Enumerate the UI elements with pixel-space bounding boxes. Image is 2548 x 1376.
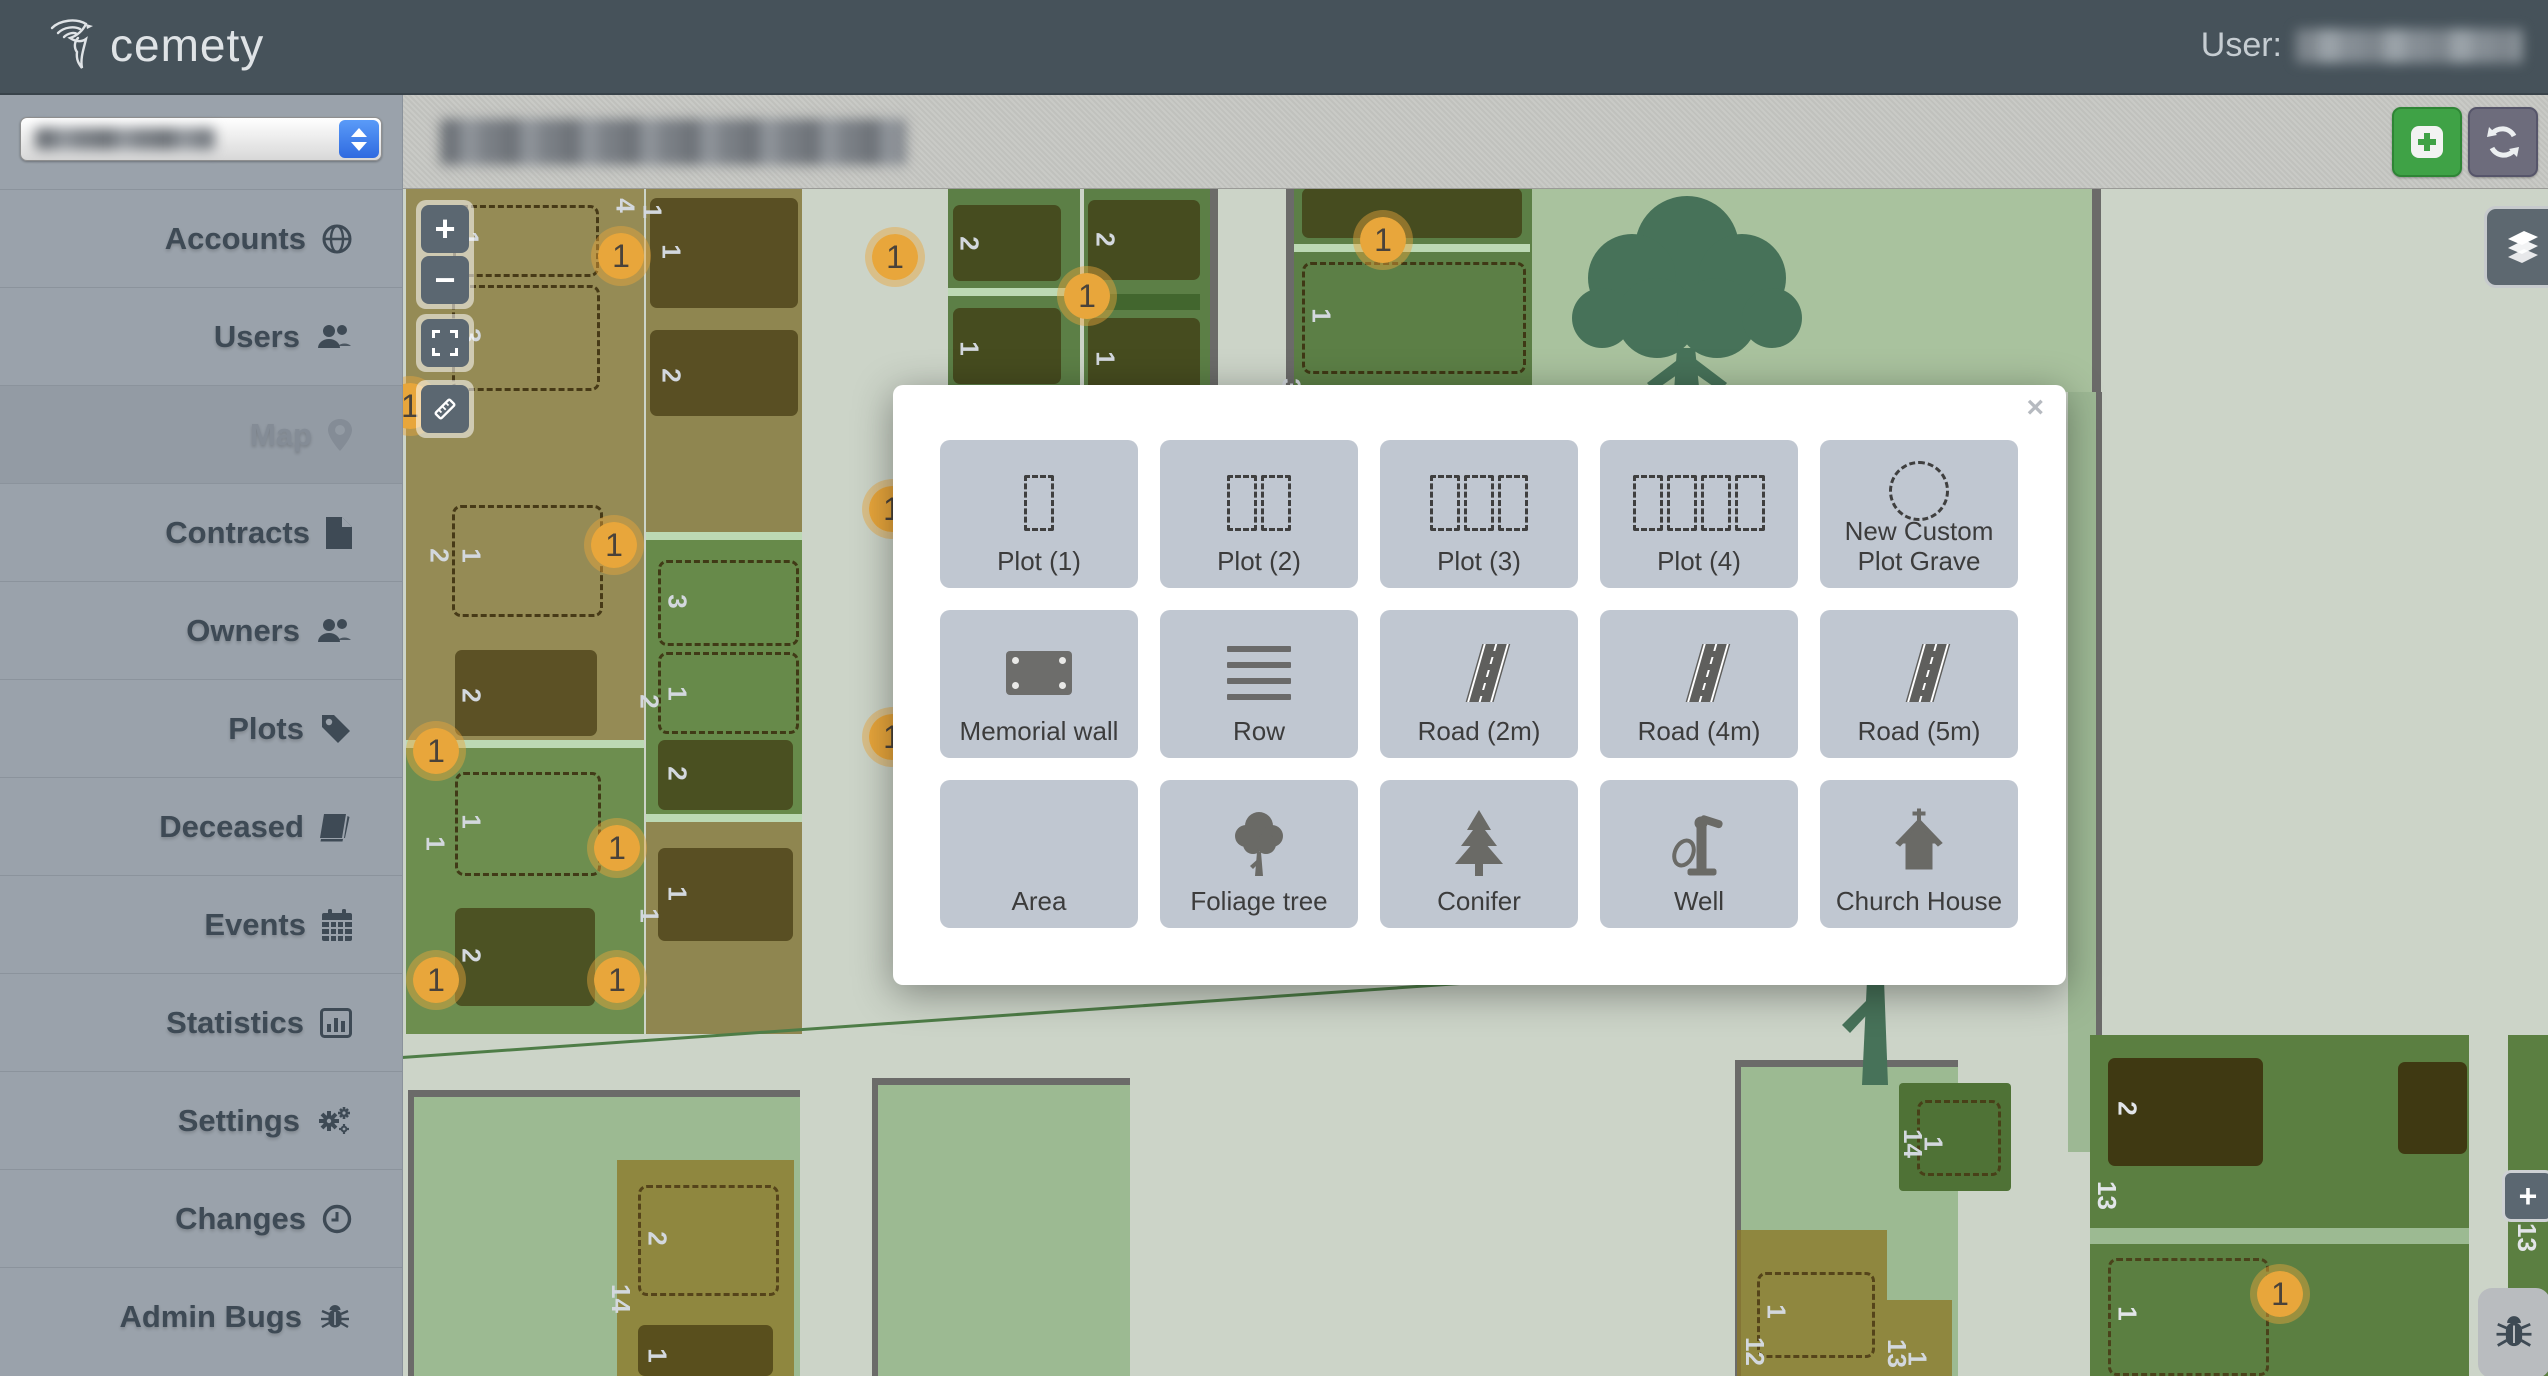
sidebar-item-label: Settings xyxy=(178,1103,300,1139)
plot-number: 1 xyxy=(420,836,451,850)
user-label: User: xyxy=(2201,26,2282,65)
custom-plot-icon xyxy=(1820,452,2018,530)
map-path xyxy=(2090,1228,2469,1244)
foliage-tree-map xyxy=(1542,188,1832,408)
add-button[interactable] xyxy=(2392,107,2462,177)
tool-memorial-wall[interactable]: Memorial wall xyxy=(940,610,1138,758)
calendar-icon xyxy=(322,909,352,941)
road-5m-icon xyxy=(1820,634,2018,712)
plot-number: 13 xyxy=(2091,1181,2122,1210)
plot-number: 2 xyxy=(634,694,665,708)
sidebar-item-events[interactable]: Events xyxy=(0,875,402,973)
plot-number: 1 xyxy=(1902,1351,1933,1365)
refresh-icon xyxy=(2483,122,2523,162)
tool-plot-2[interactable]: Plot (2) xyxy=(1160,440,1358,588)
layers-icon xyxy=(2502,229,2542,265)
plot-number: 1 xyxy=(456,814,487,828)
road-2m-icon xyxy=(1380,634,1578,712)
dove-logo-icon xyxy=(46,14,110,76)
plot-solid[interactable] xyxy=(2398,1062,2467,1154)
sidebar-item-statistics[interactable]: Statistics xyxy=(0,973,402,1071)
plot-number: 2 xyxy=(456,688,487,702)
measure-button[interactable] xyxy=(421,385,469,433)
add-icon xyxy=(2407,122,2447,162)
plot-number: 13 xyxy=(2511,1223,2542,1252)
map-marker[interactable]: 1 xyxy=(1353,210,1413,270)
users-icon xyxy=(316,616,352,646)
sidebar-item-admin-bugs[interactable]: Admin Bugs xyxy=(0,1267,402,1365)
user-name-redacted xyxy=(2296,29,2522,63)
map-header-bar xyxy=(402,93,2548,189)
map-marker[interactable]: 1 xyxy=(591,226,651,286)
plot-number: 2 xyxy=(642,1231,673,1245)
user-info[interactable]: User: xyxy=(2201,26,2522,65)
zoom-control-group: + − xyxy=(416,200,474,309)
sidebar-item-label: Map xyxy=(250,417,312,453)
sidebar-item-accounts[interactable]: Accounts xyxy=(0,189,402,287)
cemetery-map[interactable]: 4 1 1 3 1 2 2 1 1 2 1 2 3 1 2 2 1 1 2 1 … xyxy=(402,188,2548,1376)
map-marker[interactable]: 1 xyxy=(2250,1264,2310,1324)
bug-icon xyxy=(2494,1313,2534,1353)
fullscreen-button[interactable] xyxy=(421,319,469,367)
sidebar-item-label: Plots xyxy=(228,711,304,747)
sidebar-item-label: Accounts xyxy=(165,221,306,257)
plot-number: 1 xyxy=(662,886,693,900)
plot-number: 2 xyxy=(662,766,693,780)
sidebar-item-contracts[interactable]: Contracts xyxy=(0,483,402,581)
plot-1-icon xyxy=(940,464,1138,542)
sidebar-item-users[interactable]: Users xyxy=(0,287,402,385)
tool-area[interactable]: Area xyxy=(940,780,1138,928)
tool-church-house[interactable]: Church House xyxy=(1820,780,2018,928)
plot-4-icon xyxy=(1600,464,1798,542)
gears-icon xyxy=(316,1105,352,1137)
ruler-icon xyxy=(431,395,459,423)
sidebar-item-changes[interactable]: Changes xyxy=(0,1169,402,1267)
globe-icon xyxy=(322,224,352,254)
sidebar-item-label: Changes xyxy=(175,1201,306,1237)
map-marker[interactable]: 1 xyxy=(587,950,647,1010)
app-root: 4 1 1 3 1 2 2 1 1 2 1 2 3 1 2 2 1 1 2 1 … xyxy=(0,0,2548,1376)
plot-number: 1 xyxy=(642,1348,673,1362)
sidebar-item-map[interactable]: Map xyxy=(0,385,402,483)
map-marker[interactable]: 1 xyxy=(406,950,466,1010)
plot-number: 1 xyxy=(954,341,985,355)
plot-number: 3 xyxy=(662,594,693,608)
row-icon xyxy=(1160,634,1358,712)
plot-number: 1 xyxy=(656,244,687,258)
plot-number: 1 xyxy=(634,908,665,922)
map-marker[interactable]: 1 xyxy=(865,227,925,287)
sidebar-item-label: Statistics xyxy=(166,1005,304,1041)
mini-add-button[interactable]: + xyxy=(2502,1170,2548,1222)
zoom-out-button[interactable]: − xyxy=(421,256,469,304)
brand-name: cemety xyxy=(110,18,264,72)
plot-number: 2 xyxy=(424,548,455,562)
fullscreen-icon xyxy=(432,330,458,356)
map-marker[interactable]: 1 xyxy=(584,515,644,575)
refresh-button[interactable] xyxy=(2468,107,2538,177)
sidebar-item-settings[interactable]: Settings xyxy=(0,1071,402,1169)
add-object-modal: × Plot (1) Plot (2) Plot (3) Plot (4) xyxy=(893,385,2066,985)
plot-number: 1 xyxy=(1306,308,1337,322)
map-path xyxy=(646,814,802,822)
map-marker[interactable]: 1 xyxy=(587,818,647,878)
plot-solid[interactable] xyxy=(1302,188,1522,238)
plot-number: 14 xyxy=(605,1284,636,1313)
tool-conifer[interactable]: Conifer xyxy=(1380,780,1578,928)
plot-number: 1 xyxy=(637,204,668,218)
bug-icon xyxy=(318,1301,352,1333)
plot-number: 1 xyxy=(2112,1306,2143,1320)
well-icon xyxy=(1600,804,1798,882)
book-icon xyxy=(320,812,352,842)
map-bug-button[interactable] xyxy=(2478,1288,2548,1376)
brand[interactable]: cemety xyxy=(46,14,264,76)
fullscreen-control-group xyxy=(416,314,474,372)
map-path xyxy=(646,532,802,540)
tool-foliage-tree[interactable]: Foliage tree xyxy=(1160,780,1358,928)
measure-control-group xyxy=(416,380,474,438)
plot-number: 2 xyxy=(656,368,687,382)
zoom-in-button[interactable]: + xyxy=(421,205,469,253)
tool-plot-1[interactable]: Plot (1) xyxy=(940,440,1138,588)
tool-new-custom-plot-grave[interactable]: New Custom Plot Grave xyxy=(1820,440,2018,588)
sidebar-menu: Accounts Users Map xyxy=(0,189,402,1365)
sidebar-item-label: Events xyxy=(204,907,306,943)
tool-road-2m[interactable]: Road (2m) xyxy=(1380,610,1578,758)
users-icon xyxy=(316,322,352,352)
plot-number: 1 xyxy=(1761,1304,1792,1318)
sidebar-item-owners[interactable]: Owners xyxy=(0,581,402,679)
layers-button[interactable] xyxy=(2484,206,2548,288)
plot-number: 1 xyxy=(456,548,487,562)
foliage-tree-icon xyxy=(1160,804,1358,882)
sidebar-item-plots[interactable]: Plots xyxy=(0,679,402,777)
tool-well[interactable]: Well xyxy=(1600,780,1798,928)
plot-number: 1 xyxy=(662,686,693,700)
plot-number: 1 xyxy=(1918,1136,1949,1150)
tool-plot-4[interactable]: Plot (4) xyxy=(1600,440,1798,588)
tool-road-4m[interactable]: Road (4m) xyxy=(1600,610,1798,758)
plot-3-icon xyxy=(1380,464,1578,542)
cemetery-select[interactable] xyxy=(20,117,382,161)
bar-chart-icon xyxy=(320,1008,352,1038)
sidebar: Accounts Users Map xyxy=(0,93,403,1376)
plot-2-icon xyxy=(1160,464,1358,542)
sidebar-item-label: Contracts xyxy=(165,515,310,551)
clock-icon xyxy=(322,1204,352,1234)
conifer-icon xyxy=(1380,804,1578,882)
map-section-bottom-mid[interactable] xyxy=(872,1078,1130,1376)
tag-icon xyxy=(320,713,352,745)
plot-number: 12 xyxy=(1739,1337,1770,1366)
map-marker[interactable]: 1 xyxy=(406,721,466,781)
plot-number: 2 xyxy=(1090,232,1121,246)
tool-plot-3[interactable]: Plot (3) xyxy=(1380,440,1578,588)
sidebar-item-label: Users xyxy=(214,319,300,355)
tool-road-5m[interactable]: Road (5m) xyxy=(1820,610,2018,758)
sidebar-item-label: Deceased xyxy=(159,809,304,845)
memorial-wall-icon xyxy=(940,634,1138,712)
sidebar-item-deceased[interactable]: Deceased xyxy=(0,777,402,875)
road-4m-icon xyxy=(1600,634,1798,712)
file-icon xyxy=(326,517,352,549)
map-title-redacted xyxy=(440,119,906,165)
sidebar-item-label: Owners xyxy=(186,613,300,649)
select-value-redacted xyxy=(35,128,215,150)
tool-row[interactable]: Row xyxy=(1160,610,1358,758)
map-marker[interactable]: 1 xyxy=(1057,266,1117,326)
sidebar-item-label: Admin Bugs xyxy=(119,1299,302,1335)
select-stepper-icon xyxy=(339,120,379,158)
plot-number: 2 xyxy=(2112,1101,2143,1115)
area-icon xyxy=(940,804,1138,882)
map-marker-icon xyxy=(328,419,352,451)
plot-number: 1 xyxy=(1090,351,1121,365)
top-header: cemety User: xyxy=(0,0,2548,95)
modal-close-button[interactable]: × xyxy=(2026,391,2044,425)
modal-tool-grid: Plot (1) Plot (2) Plot (3) Plot (4) New … xyxy=(940,440,2018,928)
plot-number: 2 xyxy=(456,948,487,962)
church-house-icon xyxy=(1820,804,2018,882)
plot-number: 2 xyxy=(954,236,985,250)
